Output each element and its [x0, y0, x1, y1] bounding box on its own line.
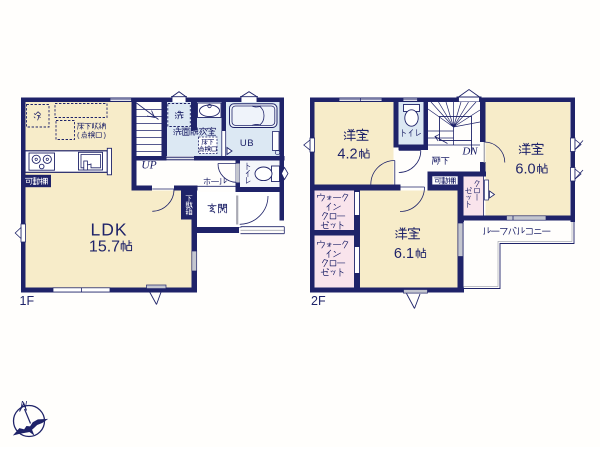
svg-text:LDK: LDK	[90, 220, 127, 240]
svg-text:DN: DN	[461, 146, 478, 158]
svg-text:UP: UP	[141, 160, 156, 172]
svg-text:6.0: 6.0	[515, 162, 535, 178]
svg-text:UB: UB	[240, 138, 254, 149]
svg-text:6.1: 6.1	[394, 246, 414, 262]
svg-text:15.7: 15.7	[89, 239, 120, 256]
svg-text:4.2: 4.2	[337, 147, 357, 163]
svg-text:2F: 2F	[311, 294, 326, 308]
svg-text:1F: 1F	[20, 294, 35, 308]
svg-text:N: N	[21, 400, 28, 410]
